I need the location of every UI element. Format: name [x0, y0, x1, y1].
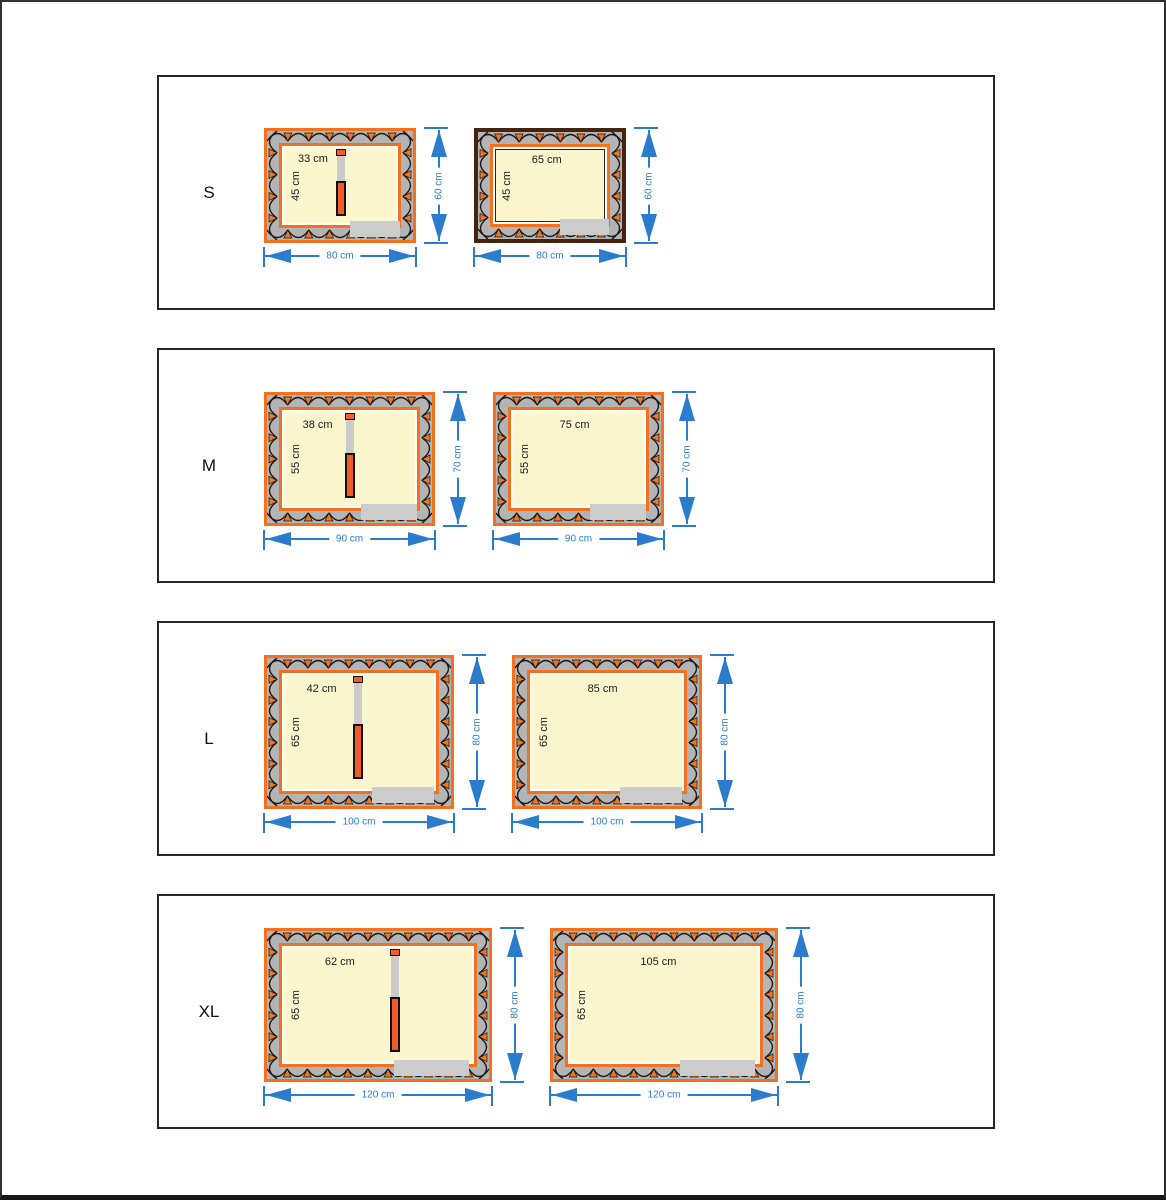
dimension-tick	[549, 1086, 551, 1106]
plan-box: 65 cm 45 cm	[474, 128, 626, 243]
dimension-tick	[263, 247, 265, 267]
plans-row: 42 cm 65 cm	[264, 623, 993, 809]
dimension-tick	[710, 808, 734, 810]
divider-post	[336, 149, 346, 216]
arrow-right-icon	[637, 532, 662, 546]
plans-row: 62 cm 65 cm	[264, 896, 993, 1082]
inner-width-label: 62 cm	[325, 956, 355, 968]
inner-height-label: 65 cm	[290, 990, 302, 1020]
arrow-down-icon	[450, 497, 466, 524]
dimension-tick	[786, 927, 810, 929]
size-panel: L 42 cm 65 cm	[157, 621, 995, 856]
door-opening	[350, 221, 400, 237]
dimension-tick	[500, 927, 524, 929]
divider-post	[345, 413, 355, 498]
plan-box: 75 cm 55 cm	[493, 392, 664, 526]
width-dimension-label: 80 cm	[529, 251, 570, 262]
divider-cap	[345, 413, 355, 420]
height-dimension: 80 cm	[710, 655, 742, 809]
dimension-tick	[777, 1086, 779, 1106]
plan-interior: 65 cm 45 cm	[495, 149, 605, 222]
dimension-tick	[634, 127, 658, 129]
inner-height-label: 65 cm	[538, 717, 550, 747]
arrow-left-icon	[514, 815, 539, 829]
inner-height-label: 65 cm	[576, 990, 588, 1020]
width-dimension: 80 cm	[474, 245, 626, 273]
dimension-tick	[672, 525, 696, 527]
door-opening	[680, 1060, 755, 1076]
height-dimension-label: 80 cm	[471, 713, 484, 750]
arrow-left-icon	[552, 1088, 577, 1102]
arrow-left-icon	[476, 249, 501, 263]
plan-block: 33 cm 45 cm	[264, 128, 416, 243]
dimension-tick	[434, 530, 436, 550]
dimension-tick	[263, 813, 265, 833]
size-label: M	[159, 456, 259, 476]
dimension-tick	[415, 247, 417, 267]
arrow-right-icon	[427, 815, 452, 829]
arrow-down-icon	[717, 780, 733, 807]
width-dimension-label: 100 cm	[584, 817, 631, 828]
height-dimension: 80 cm	[462, 655, 494, 809]
width-dimension-label: 80 cm	[319, 251, 360, 262]
plan-interior: 38 cm 55 cm	[284, 412, 415, 506]
dimension-tick	[424, 127, 448, 129]
width-dimension-label: 100 cm	[336, 817, 383, 828]
height-dimension-label: 80 cm	[719, 713, 732, 750]
width-dimension: 120 cm	[264, 1084, 492, 1112]
inner-width-label: 33 cm	[298, 153, 328, 165]
height-dimension-label: 60 cm	[643, 167, 656, 204]
drawing-sheet: S 33 cm 45 cm	[0, 0, 1166, 1200]
inner-border: 85 cm 65 cm	[527, 670, 687, 794]
plan-interior: 75 cm 55 cm	[513, 412, 644, 506]
arrow-right-icon	[465, 1088, 490, 1102]
height-dimension-label: 80 cm	[795, 986, 808, 1023]
arrow-down-icon	[507, 1053, 523, 1080]
dimension-tick	[424, 242, 448, 244]
divider-upper-segment	[346, 420, 354, 453]
arrow-down-icon	[431, 214, 447, 241]
height-dimension-label: 70 cm	[452, 440, 465, 477]
arrow-left-icon	[266, 532, 291, 546]
arrow-up-icon	[641, 130, 657, 157]
inner-width-label: 38 cm	[303, 419, 333, 431]
size-panel: S 33 cm 45 cm	[157, 75, 995, 310]
size-label: L	[159, 729, 259, 749]
arrow-up-icon	[507, 930, 523, 957]
divider-lower-segment	[390, 997, 400, 1052]
plans-row: 38 cm 55 cm	[264, 350, 993, 526]
dimension-tick	[453, 813, 455, 833]
inner-border: 65 cm 45 cm	[490, 144, 610, 227]
dimension-tick	[511, 813, 513, 833]
width-dimension-label: 90 cm	[558, 534, 599, 545]
size-panels: S 33 cm 45 cm	[157, 75, 995, 1129]
inner-border: 75 cm 55 cm	[508, 407, 649, 511]
size-panel: XL 62 cm 65 cm	[157, 894, 995, 1129]
dimension-tick	[263, 530, 265, 550]
arrow-right-icon	[389, 249, 414, 263]
arrow-down-icon	[641, 214, 657, 241]
plan-interior: 85 cm 65 cm	[532, 675, 682, 789]
height-dimension: 70 cm	[672, 392, 704, 526]
door-opening	[590, 504, 646, 520]
dimension-tick	[473, 247, 475, 267]
dimension-tick	[500, 1081, 524, 1083]
divider-lower-segment	[345, 453, 355, 498]
plan-interior: 62 cm 65 cm	[284, 948, 472, 1062]
dimension-tick	[786, 1081, 810, 1083]
dimension-tick	[701, 813, 703, 833]
divider-upper-segment	[391, 956, 399, 997]
arrow-up-icon	[450, 394, 466, 421]
plan-block: 105 cm 65 cm 80 cm	[550, 928, 778, 1082]
inner-width-label: 85 cm	[588, 683, 618, 695]
width-dimension-label: 90 cm	[329, 534, 370, 545]
height-dimension-label: 80 cm	[509, 986, 522, 1023]
dimension-tick	[462, 808, 486, 810]
inner-border: 38 cm 55 cm	[279, 407, 420, 511]
height-dimension: 80 cm	[500, 928, 532, 1082]
divider-lower-segment	[336, 181, 346, 216]
height-dimension: 80 cm	[786, 928, 818, 1082]
inner-border: 105 cm 65 cm	[565, 943, 763, 1067]
plan-box: 105 cm 65 cm	[550, 928, 778, 1082]
height-dimension-label: 70 cm	[681, 440, 694, 477]
dimension-tick	[443, 391, 467, 393]
inner-width-label: 105 cm	[640, 956, 676, 968]
dimension-tick	[492, 530, 494, 550]
width-dimension: 90 cm	[264, 528, 435, 556]
plan-box: 85 cm 65 cm	[512, 655, 702, 809]
width-dimension-label: 120 cm	[641, 1090, 688, 1101]
width-dimension-label: 120 cm	[355, 1090, 402, 1101]
plan-interior: 42 cm 65 cm	[284, 675, 434, 789]
plans-row: 33 cm 45 cm	[264, 77, 993, 243]
arrow-right-icon	[408, 532, 433, 546]
width-dimension: 90 cm	[493, 528, 664, 556]
plan-interior: 33 cm 45 cm	[284, 148, 396, 223]
door-opening	[620, 787, 683, 803]
dimension-tick	[625, 247, 627, 267]
arrow-left-icon	[266, 815, 291, 829]
arrow-up-icon	[793, 930, 809, 957]
width-dimension: 100 cm	[512, 811, 702, 839]
inner-border: 42 cm 65 cm	[279, 670, 439, 794]
arrow-up-icon	[717, 657, 733, 684]
width-dimension: 100 cm	[264, 811, 454, 839]
arrow-down-icon	[679, 497, 695, 524]
dimension-tick	[710, 654, 734, 656]
inner-border: 62 cm 65 cm	[279, 943, 477, 1067]
height-dimension: 70 cm	[443, 392, 475, 526]
height-dimension: 60 cm	[424, 128, 456, 243]
arrow-down-icon	[793, 1053, 809, 1080]
size-label: S	[159, 183, 259, 203]
arrow-right-icon	[675, 815, 700, 829]
divider-cap	[336, 149, 346, 156]
inner-height-label: 65 cm	[290, 717, 302, 747]
arrow-right-icon	[599, 249, 624, 263]
arrow-right-icon	[751, 1088, 776, 1102]
plan-block: 65 cm 45 cm 60 cm	[474, 128, 626, 243]
inner-height-label: 45 cm	[501, 171, 513, 201]
dimension-tick	[491, 1086, 493, 1106]
height-dimension-label: 60 cm	[433, 167, 446, 204]
divider-post	[353, 676, 363, 779]
divider-cap	[353, 676, 363, 683]
plan-box: 33 cm 45 cm	[264, 128, 416, 243]
dimension-tick	[263, 1086, 265, 1106]
inner-height-label: 45 cm	[290, 171, 302, 201]
arrow-left-icon	[495, 532, 520, 546]
plan-block: 62 cm 65 cm	[264, 928, 492, 1082]
dimension-tick	[672, 391, 696, 393]
inner-height-label: 55 cm	[290, 444, 302, 474]
divider-lower-segment	[353, 724, 363, 779]
plan-block: 38 cm 55 cm	[264, 392, 435, 526]
dimension-tick	[462, 654, 486, 656]
door-opening	[560, 219, 609, 235]
arrow-up-icon	[469, 657, 485, 684]
arrow-down-icon	[469, 780, 485, 807]
inner-width-label: 75 cm	[560, 419, 590, 431]
divider-upper-segment	[354, 683, 362, 724]
height-dimension: 60 cm	[634, 128, 666, 243]
inner-border: 33 cm 45 cm	[279, 143, 401, 228]
inner-width-label: 42 cm	[307, 683, 337, 695]
arrow-left-icon	[266, 249, 291, 263]
plan-box: 42 cm 65 cm	[264, 655, 454, 809]
door-opening	[361, 504, 417, 520]
plan-block: 42 cm 65 cm	[264, 655, 454, 809]
plan-interior: 105 cm 65 cm	[570, 948, 758, 1062]
plan-block: 75 cm 55 cm 70 cm	[493, 392, 664, 526]
size-panel: M 38 cm 55 cm	[157, 348, 995, 583]
inner-height-label: 55 cm	[519, 444, 531, 474]
dimension-tick	[443, 525, 467, 527]
divider-cap	[390, 949, 400, 956]
inner-width-label: 65 cm	[532, 154, 562, 166]
arrow-up-icon	[679, 394, 695, 421]
plan-box: 38 cm 55 cm	[264, 392, 435, 526]
dimension-tick	[663, 530, 665, 550]
arrow-left-icon	[266, 1088, 291, 1102]
dimension-tick	[634, 242, 658, 244]
width-dimension: 120 cm	[550, 1084, 778, 1112]
size-label: XL	[159, 1002, 259, 1022]
plan-box: 62 cm 65 cm	[264, 928, 492, 1082]
divider-post	[390, 949, 400, 1052]
door-opening	[372, 787, 435, 803]
width-dimension: 80 cm	[264, 245, 416, 273]
plan-block: 85 cm 65 cm 80 cm	[512, 655, 702, 809]
divider-upper-segment	[337, 156, 345, 181]
door-opening	[394, 1060, 469, 1076]
arrow-up-icon	[431, 130, 447, 157]
